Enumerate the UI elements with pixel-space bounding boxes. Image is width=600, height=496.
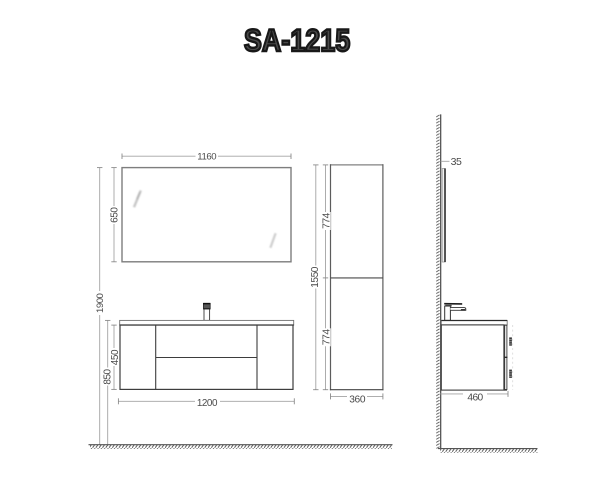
svg-text:1550: 1550 [310,266,321,287]
svg-text:450: 450 [110,349,121,365]
svg-text:1900: 1900 [95,293,106,313]
svg-text:650: 650 [109,207,120,223]
svg-text:460: 460 [467,392,483,403]
svg-text:774: 774 [321,212,332,229]
svg-text:360: 360 [349,395,366,406]
svg-text:1160: 1160 [197,151,216,162]
svg-text:35: 35 [451,156,462,168]
svg-text:SA-1215: SA-1215 [244,24,350,59]
svg-text:1200: 1200 [197,398,218,409]
svg-text:850: 850 [103,368,114,384]
svg-text:774: 774 [321,329,332,346]
